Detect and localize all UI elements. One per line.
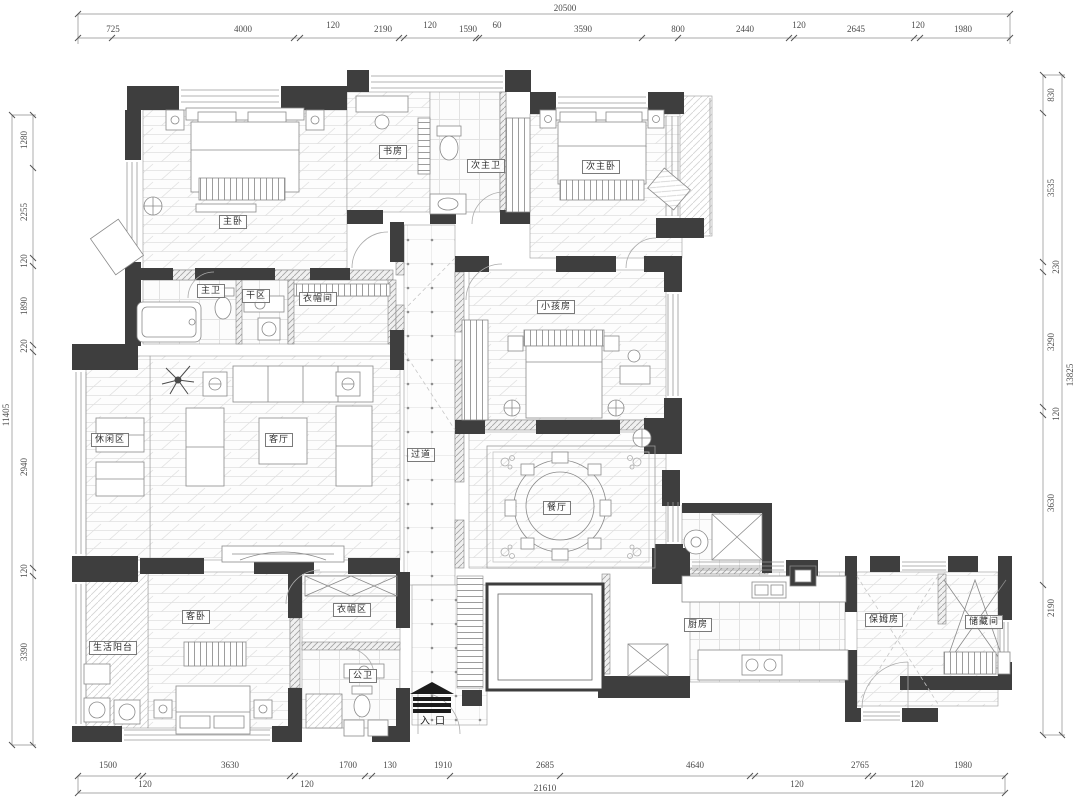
room-label-walk-in-closet: 衣帽间 (299, 292, 337, 306)
dim-left-seg: 220 (19, 339, 29, 353)
room-label-second-master-bedroom: 次主卧 (582, 160, 620, 174)
dim-bottom-between: 120 (910, 779, 924, 789)
dim-right-seg: 120 (1051, 407, 1061, 421)
dim-bottom-seg: 3630 (221, 760, 239, 770)
room-label-guest-bath: 公卫 (349, 669, 377, 683)
room-label-second-master-bath: 次主卫 (467, 159, 505, 173)
dim-top-overall: 20500 (554, 3, 577, 13)
room-label-leisure-area: 休闲区 (91, 433, 129, 447)
room-label-corridor: 过道 (407, 448, 435, 462)
room-label-dining-room: 餐厅 (543, 501, 571, 515)
dim-bottom-seg: 4640 (686, 760, 704, 770)
dim-bottom-seg: 2765 (851, 760, 869, 770)
dim-left-seg: 3390 (19, 643, 29, 661)
dim-bottom-seg: 130 (383, 760, 397, 770)
dim-left-seg: 2255 (19, 203, 29, 221)
dim-bottom-seg: 1500 (99, 760, 117, 770)
dim-top-seg: 3590 (574, 24, 592, 34)
dim-left-overall: 11405 (1, 404, 11, 426)
floorplan-drawing (0, 0, 1080, 798)
dim-bottom-seg: 1910 (434, 760, 452, 770)
dim-top-seg: 120 (326, 20, 340, 30)
dim-right-seg: 3290 (1046, 333, 1056, 351)
dim-right-seg: 3535 (1046, 179, 1056, 197)
dim-bottom-seg: 1700 (339, 760, 357, 770)
room-label-guest-bedroom: 客卧 (182, 610, 210, 624)
room-label-storage: 储藏间 (965, 615, 1003, 629)
room-label-nanny-room: 保姆房 (865, 613, 903, 627)
dim-left-seg: 120 (19, 254, 29, 268)
dim-right-seg: 830 (1046, 88, 1056, 102)
room-label-closet-area: 衣帽区 (333, 603, 371, 617)
room-label-dry-area: 干区 (242, 289, 270, 303)
dim-top-seg: 4000 (234, 24, 252, 34)
room-label-master-bedroom: 主卧 (219, 215, 247, 229)
dim-top-seg: 800 (671, 24, 685, 34)
dim-left-seg: 2940 (19, 458, 29, 476)
dim-bottom-between: 120 (790, 779, 804, 789)
dim-top-seg: 1590 (459, 24, 477, 34)
dim-bottom-seg: 1980 (954, 760, 972, 770)
dim-bottom-overall: 21610 (534, 783, 557, 793)
dim-bottom-seg: 2685 (536, 760, 554, 770)
room-label-study: 书房 (379, 145, 407, 159)
dim-top-seg: 60 (493, 20, 502, 30)
dim-top-seg: 120 (423, 20, 437, 30)
dim-right-seg: 230 (1051, 260, 1061, 274)
dim-top-seg: 2440 (736, 24, 754, 34)
dim-left-seg: 1280 (19, 131, 29, 149)
dim-left-seg: 120 (19, 564, 29, 578)
room-label-master-bath: 主卫 (197, 284, 225, 298)
floorplan-canvas: 主卧 书房 次主卫 次主卧 主卫 干区 衣帽间 小孩房 休闲区 客厅 过道 餐厅… (0, 0, 1080, 798)
room-label-kitchen: 厨房 (684, 618, 712, 632)
dim-right-overall: 13825 (1065, 364, 1075, 387)
room-label-kids-room: 小孩房 (537, 300, 575, 314)
dim-right-seg: 3630 (1046, 494, 1056, 512)
dim-top-seg: 120 (792, 20, 806, 30)
dim-top-seg: 1980 (954, 24, 972, 34)
dim-left-seg: 1890 (19, 297, 29, 315)
room-label-utility-balcony: 生活阳台 (89, 641, 137, 655)
dim-top-seg: 2645 (847, 24, 865, 34)
dim-top-seg: 120 (911, 20, 925, 30)
room-label-living-room: 客厅 (265, 433, 293, 447)
dim-bottom-between: 120 (300, 779, 314, 789)
room-label-entrance: 入口 (417, 716, 453, 728)
dim-top-seg: 2190 (374, 24, 392, 34)
dim-right-seg: 2190 (1046, 599, 1056, 617)
dim-bottom-between: 120 (138, 779, 152, 789)
dim-top-seg: 725 (106, 24, 120, 34)
